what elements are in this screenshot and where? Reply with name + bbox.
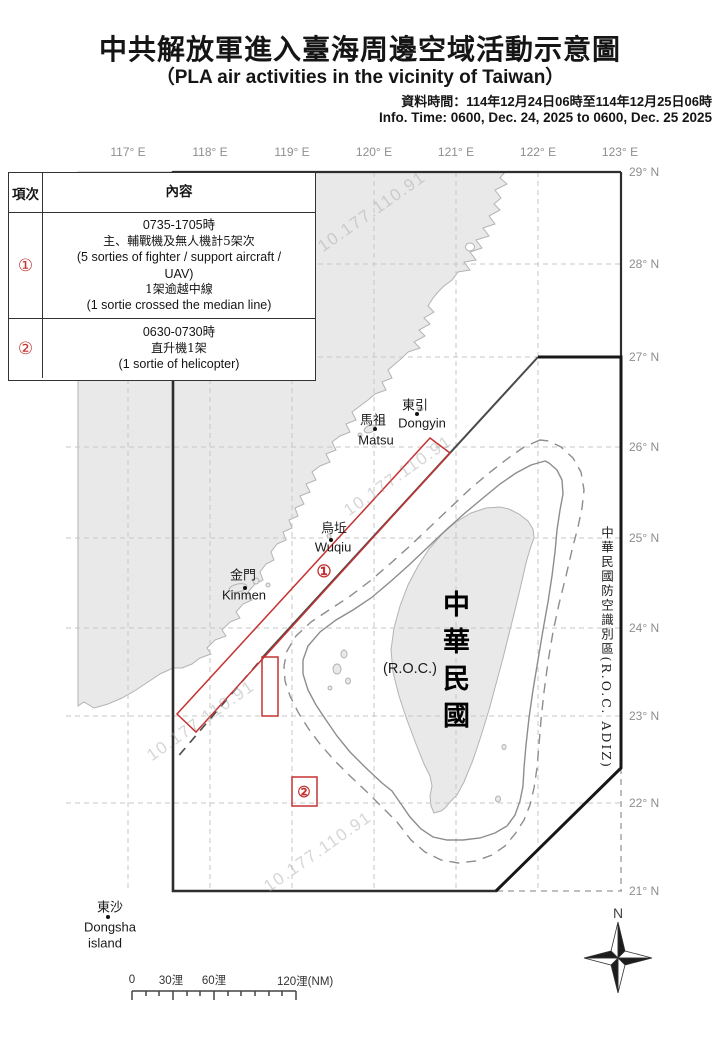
row-content: 0630-0730時 直升機1架 (1 sortie of helicopter…	[43, 319, 315, 378]
scale-bar	[132, 991, 296, 1000]
lat-label-28n: 28° N	[629, 257, 659, 271]
lat-label-24n: 24° N	[629, 621, 659, 635]
place-label-dongsha-island: island	[88, 936, 122, 951]
lat-label-26n: 26° N	[629, 440, 659, 454]
lon-label-121e: 121° E	[438, 145, 474, 159]
lat-label-22n: 22° N	[629, 796, 659, 810]
place-label-kinmen-zh: 金門	[230, 565, 256, 584]
place-label-dongsha-zh: 東沙	[97, 897, 123, 916]
place-label-dongsha-en: Dongsha	[84, 920, 136, 935]
place-label-taiwan-roc-zh: 中華民國	[434, 590, 473, 760]
activity-table: 項次 內容 ① 0735-1705時 主、輔戰機及無人機計5架次 (5 sort…	[8, 172, 316, 381]
lat-label-25n: 25° N	[629, 531, 659, 545]
place-label-wuqiu-en: Wuqiu	[315, 540, 352, 555]
scale-label-120: 120浬(NM)	[277, 973, 333, 989]
lat-label-27n: 27° N	[629, 350, 659, 364]
place-label-wuqiu-zh: 烏坵	[321, 518, 347, 537]
row-content-line: UAV)	[165, 266, 194, 282]
lon-label-123e: 123° E	[602, 145, 638, 159]
row-index-badge: ②	[9, 319, 43, 378]
row-content-line: (5 sorties of fighter / support aircraft…	[77, 249, 281, 265]
lon-label-122e: 122° E	[520, 145, 556, 159]
lat-label-29n: 29° N	[629, 165, 659, 179]
compass-north-label: N	[613, 905, 623, 921]
place-label-taiwan-roc-en: (R.O.C.)	[383, 661, 437, 677]
row-content-line: 0630-0730時	[143, 324, 215, 340]
table-row: ① 0735-1705時 主、輔戰機及無人機計5架次 (5 sorties of…	[9, 213, 315, 319]
lon-label-117e: 117° E	[110, 145, 145, 159]
place-label-dongyin-zh: 東引	[402, 395, 428, 414]
adiz-vertical-label: 中華民國防空識別區(R.O.C. ADIZ)	[597, 526, 616, 778]
compass-rose	[584, 922, 652, 993]
table-header-row: 項次 內容	[9, 173, 315, 213]
table-row: ② 0630-0730時 直升機1架 (1 sortie of helicopt…	[9, 319, 315, 378]
place-label-matsu-zh: 馬祖	[360, 410, 386, 429]
lon-label-119e: 119° E	[274, 145, 309, 159]
scale-label-60: 60浬	[202, 972, 226, 988]
activity-marker-2: ②	[297, 783, 310, 801]
table-header-content: 內容	[43, 173, 315, 212]
table-header-index: 項次	[9, 173, 43, 212]
row-content-line: 1架逾越中線	[145, 282, 213, 298]
lat-label-23n: 23° N	[629, 709, 659, 723]
row-index-badge: ①	[9, 213, 43, 318]
row-content-line: (1 sortie crossed the median line)	[87, 297, 272, 313]
place-label-dongyin-en: Dongyin	[398, 416, 446, 431]
scale-label-0: 0	[129, 974, 135, 986]
activity-marker-1: ①	[316, 562, 331, 582]
lat-label-21n: 21° N	[629, 884, 659, 898]
row-content-line: 0735-1705時	[143, 217, 215, 233]
lon-label-118e: 118° E	[192, 145, 227, 159]
row-content-line: 直升機1架	[151, 341, 207, 357]
page: 中共解放軍進入臺海周邊空域活動示意圖 （PLA air activities i…	[0, 0, 720, 1040]
row-content-line: (1 sortie of helicopter)	[119, 356, 240, 372]
place-label-matsu-en: Matsu	[358, 433, 393, 448]
lon-label-120e: 120° E	[356, 145, 392, 159]
place-label-kinmen-en: Kinmen	[222, 588, 266, 603]
row-content-line: 主、輔戰機及無人機計5架次	[103, 234, 255, 250]
scale-label-30: 30浬	[159, 972, 183, 988]
row-content: 0735-1705時 主、輔戰機及無人機計5架次 (5 sorties of f…	[43, 213, 315, 318]
